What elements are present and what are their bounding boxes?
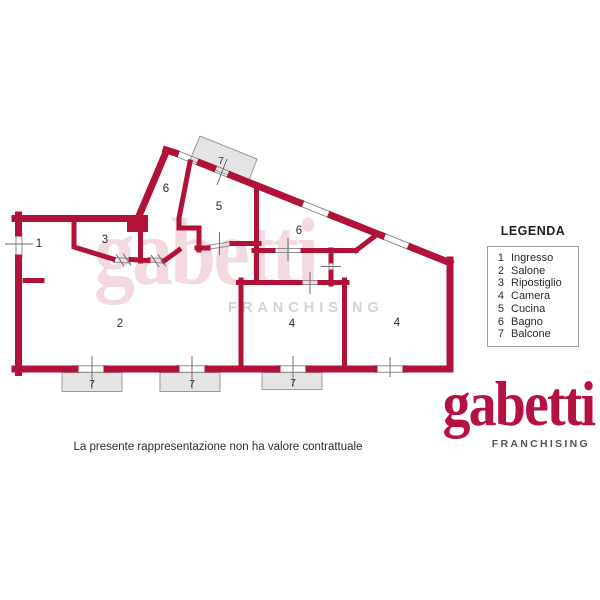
legend-item-balcone: 7 Balcone xyxy=(495,328,574,341)
legend-item-label: Salone xyxy=(511,265,545,278)
legend-item-salone: 2 Salone xyxy=(495,265,574,278)
gabetti-logo-wordmark: gabetti xyxy=(443,372,595,436)
legend-item-label: Cucina xyxy=(511,303,545,316)
room-label-bagno-2: 6 xyxy=(296,225,302,237)
legend-item-number: 2 xyxy=(495,265,504,278)
legend-item-label: Ingresso xyxy=(511,252,553,265)
legend-title: LEGENDA xyxy=(487,224,579,238)
legend-item-number: 3 xyxy=(495,277,504,290)
legend-item-label: Balcone xyxy=(511,328,551,341)
room-label-salone: 2 xyxy=(117,318,123,330)
balcony-label-1: 7 xyxy=(89,378,95,390)
balcony-label-top: 7 xyxy=(218,155,224,167)
legend-box: 1 Ingresso 2 Salone 3 Ripostiglio 4 Came… xyxy=(487,246,579,347)
legend-item-number: 7 xyxy=(495,328,504,341)
legend: LEGENDA 1 Ingresso 2 Salone 3 Ripostigli… xyxy=(487,224,579,347)
exterior-walls xyxy=(15,150,450,373)
room-label-camera-1: 4 xyxy=(289,318,296,330)
legend-item-cucina: 5 Cucina xyxy=(495,303,574,316)
legend-item-number: 4 xyxy=(495,290,504,303)
gabetti-logo: gabetti FRANCHISING xyxy=(420,372,590,450)
legend-item-label: Bagno xyxy=(511,316,543,329)
wall-junction-block xyxy=(127,215,148,232)
legend-item-label: Ripostiglio xyxy=(511,277,562,290)
room-label-bagno-1: 6 xyxy=(163,183,169,195)
balcony-label-3: 7 xyxy=(290,377,296,389)
legend-item-number: 6 xyxy=(495,316,504,329)
legend-item-camera: 4 Camera xyxy=(495,290,574,303)
balconies xyxy=(62,136,322,392)
legend-item-label: Camera xyxy=(511,290,550,303)
legend-item-number: 1 xyxy=(495,252,504,265)
legend-item-bagno: 6 Bagno xyxy=(495,316,574,329)
legend-item-ingresso: 1 Ingresso xyxy=(495,252,574,265)
room-label-cucina: 5 xyxy=(216,201,222,213)
balcony-label-2: 7 xyxy=(189,378,195,390)
gabetti-logo-subtitle: FRANCHISING xyxy=(420,438,590,450)
interior-walls xyxy=(25,162,377,366)
legend-item-number: 5 xyxy=(495,303,504,316)
disclaimer-text: La presente rappresentazione non ha valo… xyxy=(18,441,418,453)
legend-item-ripostiglio: 3 Ripostiglio xyxy=(495,277,574,290)
window-lines xyxy=(16,150,412,372)
floor-plan-page: gabetti FRANCHISING xyxy=(0,0,600,600)
room-label-camera-2: 4 xyxy=(394,317,401,329)
room-label-ripostiglio: 3 xyxy=(102,234,108,246)
room-label-ingresso: 1 xyxy=(36,238,42,250)
